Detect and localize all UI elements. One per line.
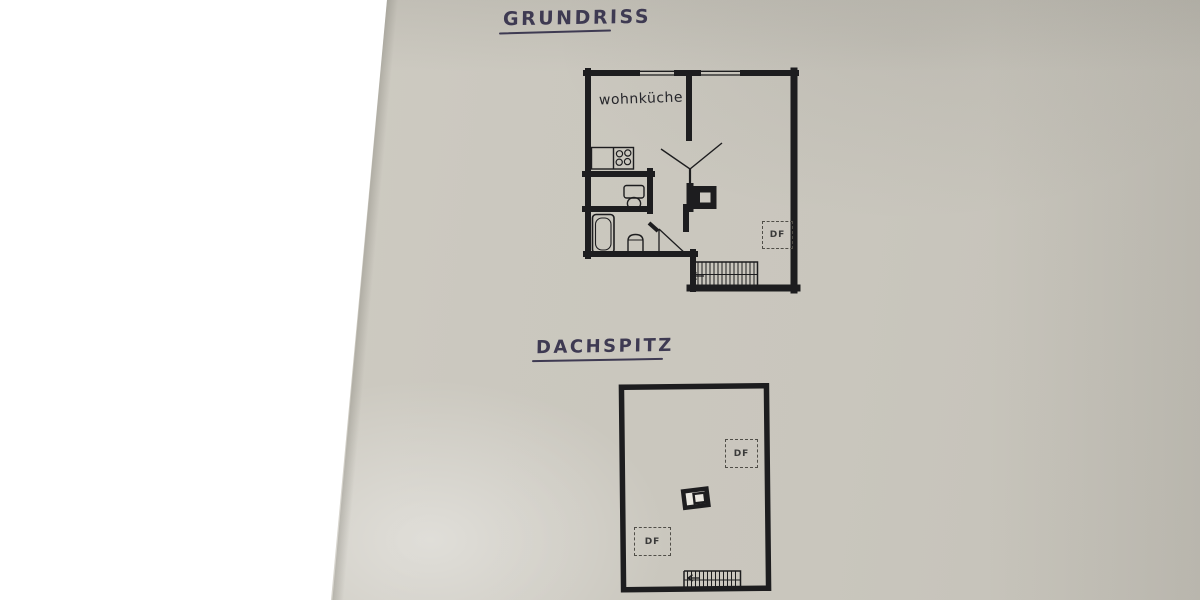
stove-burners-icon xyxy=(616,150,631,165)
grundriss-title: GRUNDRISS xyxy=(503,6,651,31)
cistern xyxy=(624,186,644,199)
stairs-treads xyxy=(698,262,754,287)
door-swing-icon xyxy=(661,143,722,169)
attic-exterior-walls xyxy=(621,386,768,590)
double-door-swing xyxy=(661,143,722,184)
window-icon xyxy=(637,71,677,75)
chimney-icon xyxy=(687,183,694,212)
dachspitz-title: DACHSPITZ xyxy=(536,335,674,358)
attic-outline-group xyxy=(621,386,768,590)
roof-window-df: DF xyxy=(634,527,671,556)
toilet-icon xyxy=(628,235,643,254)
door-leaf xyxy=(649,223,658,231)
wc-fixture xyxy=(624,186,644,210)
dachspitz-plan xyxy=(621,386,768,590)
df-label: DF xyxy=(734,449,750,459)
wohnkueche-label: wohnküche xyxy=(599,90,684,109)
roof-window-df: DF xyxy=(725,439,758,468)
photographed-floorplan-sheet: GRUNDRISS DACHSPITZ wohnküche DF DF DF xyxy=(0,0,1200,600)
window-icon xyxy=(698,71,743,75)
floorplan-drawing xyxy=(0,0,1200,600)
chimney-flue xyxy=(700,193,711,203)
staircase xyxy=(692,262,758,287)
bathtub xyxy=(593,215,615,254)
kitchen-counter xyxy=(592,148,634,170)
df-label: DF xyxy=(770,230,786,240)
chimney xyxy=(687,183,717,212)
df-label: DF xyxy=(645,537,661,547)
bathtub-inner xyxy=(596,218,612,250)
bath-toilet xyxy=(628,235,643,254)
attic-chimney xyxy=(683,489,708,508)
roof-window-df: DF xyxy=(762,221,793,249)
